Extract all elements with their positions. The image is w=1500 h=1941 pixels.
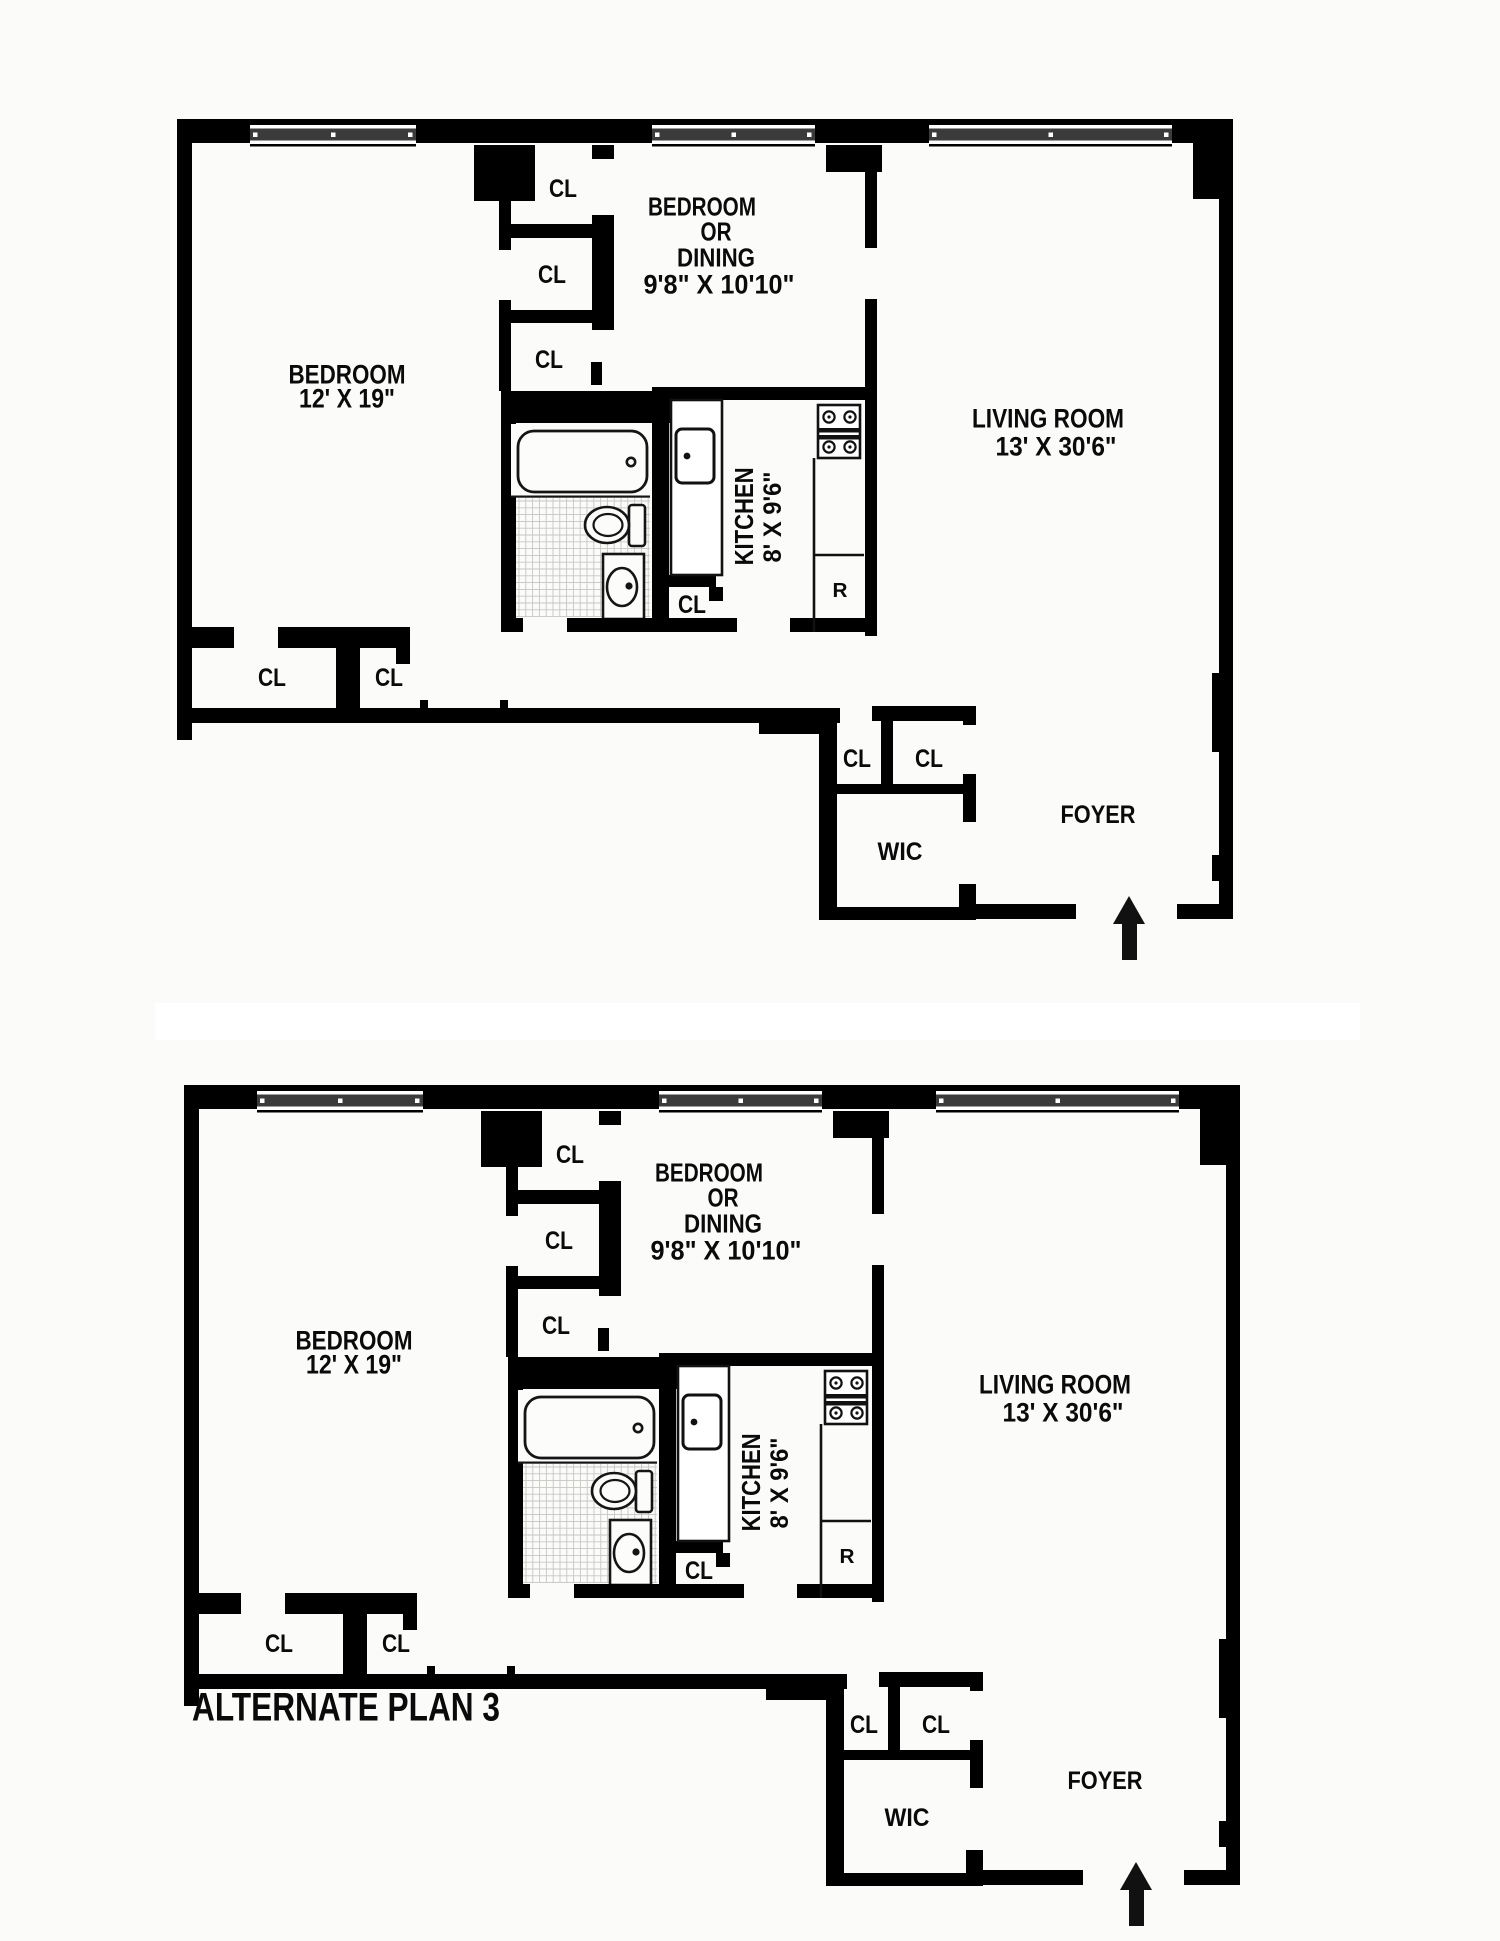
svg-text:DINING: DINING — [684, 1208, 762, 1238]
svg-text:WIC: WIC — [885, 1804, 930, 1832]
svg-text:WIC: WIC — [878, 838, 923, 866]
svg-text:FOYER: FOYER — [1068, 1767, 1143, 1795]
svg-text:R: R — [833, 580, 849, 602]
svg-text:8' X 9'6": 8' X 9'6" — [759, 472, 787, 563]
svg-text:LIVING ROOM: LIVING ROOM — [979, 1370, 1131, 1400]
svg-text:ALTERNATE PLAN 3: ALTERNATE PLAN 3 — [192, 1685, 500, 1729]
svg-text:CL: CL — [678, 591, 706, 619]
svg-text:CL: CL — [258, 664, 286, 692]
svg-text:12' X 19": 12' X 19" — [306, 1350, 402, 1380]
svg-text:CL: CL — [843, 745, 871, 773]
svg-text:9'8" X 10'10": 9'8" X 10'10" — [651, 1236, 802, 1266]
svg-text:KITCHEN: KITCHEN — [736, 1433, 766, 1531]
svg-text:CL: CL — [538, 261, 566, 289]
svg-text:LIVING ROOM: LIVING ROOM — [972, 404, 1124, 434]
svg-text:13' X 30'6": 13' X 30'6" — [1003, 1398, 1124, 1428]
svg-text:CL: CL — [542, 1312, 570, 1340]
svg-text:CL: CL — [685, 1557, 713, 1585]
svg-text:CL: CL — [850, 1711, 878, 1739]
svg-text:CL: CL — [922, 1711, 950, 1739]
svg-text:CL: CL — [535, 346, 563, 374]
svg-text:CL: CL — [545, 1227, 573, 1255]
svg-text:DINING: DINING — [677, 242, 755, 272]
svg-text:FOYER: FOYER — [1061, 801, 1136, 829]
svg-text:9'8" X 10'10": 9'8" X 10'10" — [644, 270, 795, 300]
svg-text:8' X 9'6": 8' X 9'6" — [766, 1438, 794, 1529]
svg-text:13' X 30'6": 13' X 30'6" — [996, 432, 1117, 462]
svg-text:CL: CL — [382, 1630, 410, 1658]
svg-text:CL: CL — [549, 175, 577, 203]
svg-text:KITCHEN: KITCHEN — [729, 467, 759, 565]
svg-text:R: R — [840, 1546, 856, 1568]
svg-text:12' X 19": 12' X 19" — [299, 384, 395, 414]
svg-text:CL: CL — [265, 1630, 293, 1658]
svg-text:CL: CL — [556, 1141, 584, 1169]
svg-text:CL: CL — [915, 745, 943, 773]
svg-text:CL: CL — [375, 664, 403, 692]
